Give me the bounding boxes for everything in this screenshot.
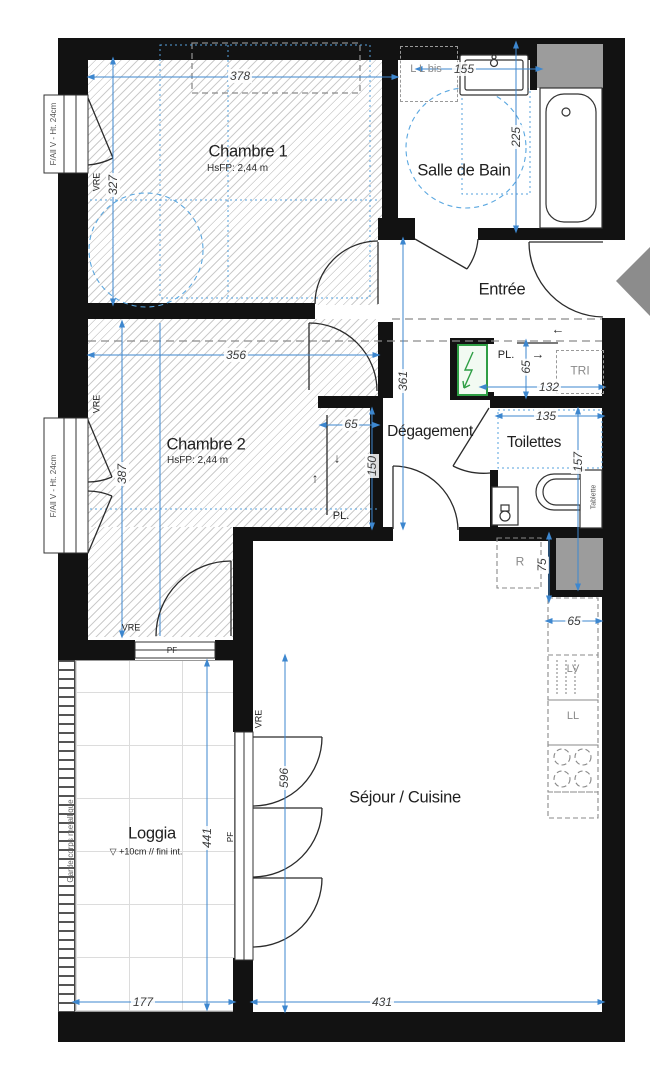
- floor-plan: Chambre 1 HsFP: 2,44 m Salle de Bain Ent…: [0, 0, 653, 1080]
- dim-frigo-height: 75: [535, 556, 549, 573]
- room-ceiling-chambre2: HsFP: 2,44 m: [167, 456, 228, 467]
- door-salle-de-bain: [415, 239, 478, 269]
- door-toilettes: [453, 408, 490, 473]
- closet-arrow-up: ↑: [312, 471, 319, 486]
- lave-linge-label: LL: [567, 711, 579, 723]
- window-porte-fenetre-sejour: [235, 732, 253, 960]
- closet-arrow-down: ↓: [334, 451, 341, 466]
- dim-chambre2-height: 387: [115, 462, 129, 486]
- room-ceiling-chambre1: HsFP: 2,44 m: [207, 164, 268, 175]
- dim-toilettes-height: 157: [571, 450, 585, 474]
- pf-label-loggia-top: PF: [167, 647, 177, 655]
- dim-chambre2-width: 356: [224, 348, 248, 362]
- vre-label-sejour-pf: VRE: [254, 710, 263, 729]
- dim-pl-entree-height: 65: [519, 358, 533, 375]
- door-chambre1: [315, 241, 378, 304]
- window-swing-chambre2: [88, 420, 112, 553]
- window-swing-chambre1: [88, 98, 113, 165]
- plan-linework: [0, 0, 653, 1080]
- tri-label: TRI: [570, 365, 589, 378]
- dim-pl2-height: 150: [365, 454, 379, 478]
- tablette-label: Tablette: [590, 485, 597, 510]
- room-label-salle-de-bain: Salle de Bain: [417, 162, 510, 179]
- vre-label-chambre2-pf: VRE: [122, 623, 141, 632]
- loggia-level-note: ▽ +10cm // fini int.: [110, 847, 183, 856]
- vre-label-chambre2: VRE: [92, 395, 101, 414]
- dim-cuisine-width: 65: [565, 614, 582, 628]
- pl-entree-label: PL.: [498, 350, 515, 362]
- room-label-sejour: Séjour / Cuisine: [349, 789, 461, 806]
- window-label-chambre1: F/All V - Ht. 24cm: [50, 103, 58, 166]
- dim-sejour-width: 431: [370, 995, 394, 1009]
- dim-pl2-width: 65: [342, 417, 359, 431]
- door-porte-fenetre-chambre2: [156, 561, 231, 636]
- dim-pl-entree-width: 132: [537, 380, 561, 394]
- room-label-degagement: Dégagement: [387, 424, 473, 440]
- dim-sejour-height: 596: [277, 766, 291, 790]
- room-label-loggia: Loggia: [128, 825, 176, 842]
- flow-arrow-left: ←: [552, 322, 565, 337]
- door-chambre2: [309, 323, 377, 391]
- room-label-chambre1: Chambre 1: [209, 143, 288, 160]
- door-entree: [529, 242, 603, 317]
- vre-label-chambre1: VRE: [92, 173, 101, 192]
- frigo-label: R: [516, 556, 525, 569]
- dim-chambre1-height: 327: [106, 173, 120, 197]
- room-label-chambre2: Chambre 2: [167, 436, 246, 453]
- lave-linge-bis-label: L L bis: [410, 64, 442, 76]
- pf-label-sejour: PF: [227, 832, 235, 842]
- dim-loggia-width: 177: [131, 995, 155, 1009]
- dim-bain-height: 225: [509, 125, 523, 149]
- lightning-icon: [463, 352, 473, 388]
- dimension-lines: [75, 44, 603, 1010]
- dim-chambre1-width: 378: [228, 69, 252, 83]
- room-label-toilettes: Toilettes: [507, 435, 561, 451]
- dim-degagement-height: 361: [396, 369, 410, 393]
- lave-vaisselle-label: LV: [567, 664, 580, 676]
- dim-toilettes-width: 135: [534, 409, 558, 423]
- room-label-entree: Entrée: [479, 281, 526, 298]
- furniture-clearance-circles: [89, 88, 526, 307]
- garde-corps-label: Garde-corps metallique: [67, 799, 75, 882]
- flow-arrow-right: →: [532, 347, 545, 362]
- bathtub: [540, 88, 602, 228]
- pl-chambre2-label: PL.: [333, 511, 350, 523]
- dim-bain-width: 155: [452, 62, 476, 76]
- window-label-chambre2: F/All V - Ht. 24cm: [50, 455, 58, 518]
- kitchen-counter-dashed: [497, 538, 598, 818]
- hand-wash-basin: [492, 487, 518, 525]
- dim-loggia-height: 441: [200, 826, 214, 850]
